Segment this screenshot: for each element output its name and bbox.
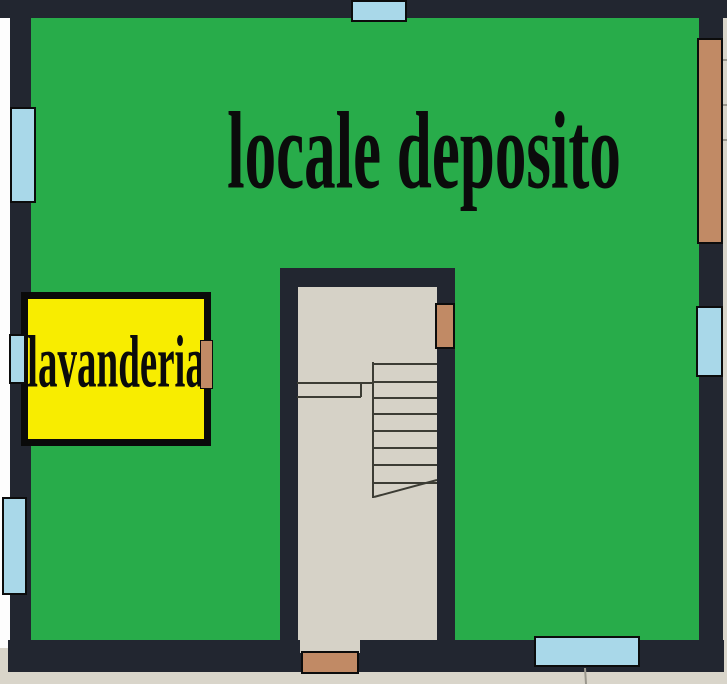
door-right [697, 38, 723, 244]
door-bottom [301, 651, 359, 674]
window-left-upper [10, 107, 36, 203]
room-lavanderia-label: lavanderia [27, 325, 205, 399]
window-left-middle [9, 334, 26, 384]
room-lavanderia: lavanderia [21, 292, 211, 446]
floor-plan: lavanderia locale deposito [0, 0, 727, 684]
window-left-lower [2, 497, 27, 595]
window-bottom [534, 636, 640, 667]
door-lavanderia [200, 340, 213, 389]
room-deposito-label: locale deposito [226, 96, 622, 206]
door-stairwell [435, 303, 455, 349]
window-top [351, 0, 407, 22]
window-right [696, 306, 723, 377]
